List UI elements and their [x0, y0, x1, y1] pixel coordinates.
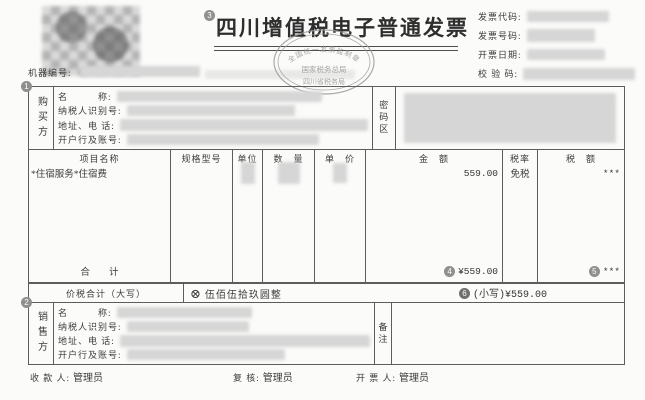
annotation-badge-title: 3 — [204, 10, 215, 21]
seller-address-label: 地址、电 话: — [58, 334, 115, 347]
annotation-badge-seller: 2 — [21, 297, 32, 308]
invoice-page: { "colors": { "paper": "#fbfbf9", "ink":… — [0, 0, 645, 400]
seller-taxid-value-redacted — [127, 321, 249, 332]
seller-side-label: 销售方 — [29, 303, 54, 364]
amount-in-words: 伍佰伍拾玖圆整 — [205, 286, 282, 301]
payee-label: 收 款 人: — [30, 371, 70, 384]
col-header-tax-rate: 税率 — [503, 150, 537, 165]
item-name-cell: *住宿服务*住宿费 — [29, 165, 170, 181]
reviewer-value: 管理员 — [263, 369, 293, 384]
remarks-area — [392, 303, 624, 364]
header-fields: 发票代码: 发票号码: 开票日期: 校 验 码: — [478, 10, 635, 80]
check-code-label: 校 验 码: — [478, 67, 518, 80]
invoice-number-value-redacted — [527, 29, 595, 42]
invoice-number-label: 发票号码: — [478, 29, 522, 42]
field-row: 发票号码: — [478, 29, 635, 42]
reviewer-label: 复 核: — [233, 371, 260, 384]
buyer-name-value-redacted — [117, 91, 322, 102]
total-amount-cell: 4 ¥559.00 — [366, 262, 502, 282]
field-row: 名 称: — [58, 90, 368, 103]
invoice-code-value-redacted — [527, 11, 609, 22]
column-unit: 单位 — [233, 150, 263, 282]
item-unit-redacted — [241, 162, 255, 184]
buyer-bank-value-redacted — [127, 134, 319, 145]
buyer-taxid-value-redacted — [127, 105, 295, 116]
annotation-badge-total-tax: 5 — [589, 266, 600, 277]
column-tax-rate: 税率 免税 — [503, 150, 538, 282]
item-tax-cell: *** — [538, 165, 624, 181]
amount-in-words-area: ⊗ 伍佰伍拾玖圆整 6 (小写)¥559.00 — [184, 284, 624, 302]
seller-name-label: 名 称: — [58, 306, 112, 319]
buyer-bank-label: 开户行及账号: — [58, 133, 122, 146]
issuer-value: 管理员 — [399, 369, 429, 384]
small-amount-group: 6 (小写)¥559.00 — [459, 285, 547, 301]
buyer-side-label: 购买方 — [29, 87, 54, 149]
check-code-value-redacted — [523, 68, 635, 80]
col-header-item-name: 项目名称 — [29, 150, 170, 165]
small-amount-value: (小写)¥559.00 — [473, 285, 547, 301]
issuer-label: 开 票 人: — [356, 371, 396, 384]
field-row: 纳税人识别号: — [58, 320, 370, 333]
payee-group: 收 款 人: 管理员 — [30, 369, 103, 384]
column-quantity: 数 量 — [263, 150, 315, 282]
column-tax: 税 额 *** 5 *** — [538, 150, 624, 282]
seller-address-value-redacted — [120, 335, 370, 347]
seller-name-value-redacted — [117, 307, 252, 318]
field-row: 地址、电 话: — [58, 119, 368, 132]
total-row-label: 合 计 — [29, 262, 170, 282]
machine-number-value-redacted — [80, 66, 200, 77]
password-area-label: 密码区 — [372, 87, 396, 149]
machine-number-label: 机器编号: — [28, 66, 72, 79]
total-tax-value: *** — [603, 266, 620, 277]
items-table: 项目名称 *住宿服务*住宿费 合 计 规格型号 单位 数 量 单 价 金 额 5… — [28, 149, 625, 283]
buyer-fields: 名 称: 纳税人识别号: 地址、电 话: 开户行及账号: — [54, 87, 372, 149]
field-row: 发票代码: — [478, 10, 635, 23]
col-header-amount: 金 额 — [366, 150, 502, 165]
annotation-badge-small-amount: 6 — [459, 288, 470, 299]
buyer-taxid-label: 纳税人识别号: — [58, 104, 122, 117]
item-quantity-redacted — [278, 162, 300, 184]
item-unit-price-redacted — [333, 163, 347, 183]
item-amount-cell: 559.00 — [366, 165, 502, 181]
field-row: 校 验 码: — [478, 67, 635, 80]
remarks-label: 备注 — [374, 303, 392, 364]
stamp-arc-text: 全国统一发票监制章 — [286, 45, 362, 65]
col-header-spec: 规格型号 — [171, 150, 232, 165]
sum-row: 价税合计（大写） ⊗ 伍佰伍拾玖圆整 6 (小写)¥559.00 — [28, 283, 625, 303]
buyer-address-value-redacted — [120, 119, 368, 131]
password-area — [396, 87, 624, 149]
buyer-address-label: 地址、电 话: — [58, 119, 115, 132]
amount-in-words-label: 价税合计（大写） — [29, 284, 184, 302]
seller-fields: 名 称: 纳税人识别号: 地址、电 话: 开户行及账号: — [54, 303, 374, 364]
column-item-name: 项目名称 *住宿服务*住宿费 合 计 — [29, 150, 171, 282]
field-row: 名 称: — [58, 306, 370, 319]
stamp-middle-text: 国家税务总局 — [302, 64, 347, 74]
invoice-code-label: 发票代码: — [478, 10, 522, 23]
buyer-name-label: 名 称: — [58, 90, 112, 103]
item-tax-rate-cell: 免税 — [503, 165, 537, 181]
col-header-tax: 税 额 — [538, 150, 624, 165]
field-row: 地址、电 话: — [58, 334, 370, 347]
annotation-badge-buyer: 1 — [21, 81, 32, 92]
stamp-bottom-text: 四川省税务局 — [303, 77, 345, 86]
circled-cross-icon: ⊗ — [190, 287, 201, 300]
field-row: 开户行及账号: — [58, 348, 370, 361]
annotation-badge-total-amount: 4 — [444, 266, 455, 277]
field-row: 开户行及账号: — [58, 133, 368, 146]
column-amount: 金 额 559.00 4 ¥559.00 — [366, 150, 503, 282]
seller-taxid-label: 纳税人识别号: — [58, 320, 122, 333]
reviewer-group: 复 核: 管理员 — [233, 369, 293, 384]
issuer-group: 开 票 人: 管理员 — [356, 369, 429, 384]
seller-section: 销售方 名 称: 纳税人识别号: 地址、电 话: 开户行及账号: 备注 — [28, 302, 625, 365]
column-unit-price: 单 价 — [315, 150, 366, 282]
buyer-section: 购买方 名 称: 纳税人识别号: 地址、电 话: 开户行及账号: 密码区 — [28, 86, 625, 150]
field-row: 开票日期: — [478, 48, 635, 61]
payee-value: 管理员 — [73, 369, 103, 384]
total-amount-value: ¥559.00 — [458, 266, 498, 277]
issue-date-value-redacted — [527, 49, 605, 60]
password-value-redacted — [404, 93, 616, 143]
svg-text:全国统一发票监制章: 全国统一发票监制章 — [286, 45, 362, 65]
seller-bank-label: 开户行及账号: — [58, 348, 122, 361]
total-tax-cell: 5 *** — [538, 262, 624, 282]
issue-date-label: 开票日期: — [478, 48, 522, 61]
field-row: 纳税人识别号: — [58, 104, 368, 117]
column-spec: 规格型号 — [171, 150, 233, 282]
seller-bank-value-redacted — [127, 349, 285, 360]
